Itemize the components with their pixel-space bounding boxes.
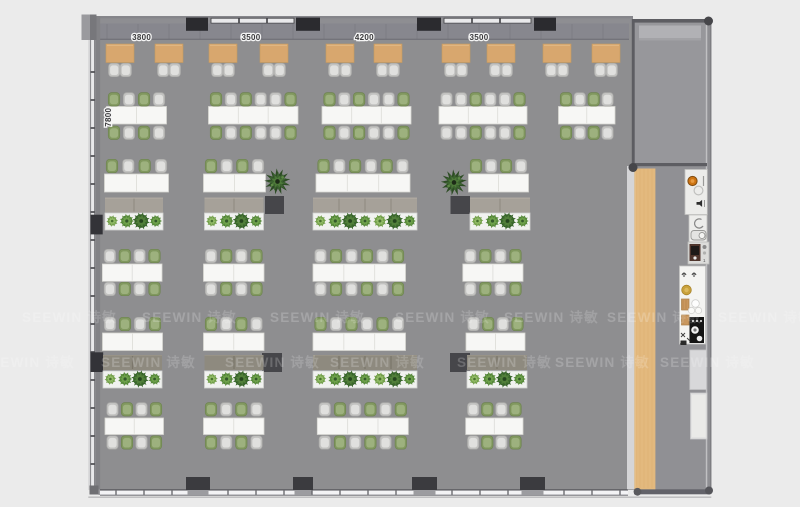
svg-text:4200: 4200 (355, 33, 374, 42)
svg-text:SEEWIN 诗敏: SEEWIN 诗敏 (142, 309, 237, 325)
svg-text:SEEWIN 诗敏: SEEWIN 诗敏 (330, 354, 425, 370)
svg-text:7800: 7800 (104, 108, 113, 127)
svg-text:SEEWIN 诗敏: SEEWIN 诗敏 (555, 354, 650, 370)
svg-text:SEEWIN 诗敏: SEEWIN 诗敏 (395, 309, 490, 325)
svg-text:3800: 3800 (132, 33, 151, 42)
svg-text:SEEWIN 诗敏: SEEWIN 诗敏 (457, 354, 552, 370)
svg-text:3500: 3500 (470, 33, 489, 42)
svg-text:SEEWIN 诗敏: SEEWIN 诗敏 (22, 309, 117, 325)
svg-text:3500: 3500 (242, 33, 261, 42)
svg-text:SEEWIN 诗敏: SEEWIN 诗敏 (101, 354, 196, 370)
svg-text:SEEWIN 诗敏: SEEWIN 诗敏 (225, 354, 320, 370)
svg-text:SEEWIN 诗敏: SEEWIN 诗敏 (718, 309, 800, 325)
svg-text:SEEWIN 诗敏: SEEWIN 诗敏 (660, 354, 755, 370)
svg-text:SEEWIN 诗敏: SEEWIN 诗敏 (504, 309, 599, 325)
svg-text:SEEWIN 诗敏: SEEWIN 诗敏 (607, 309, 702, 325)
svg-text:SEEWIN 诗敏: SEEWIN 诗敏 (270, 309, 365, 325)
svg-text:SEEWIN 诗敏: SEEWIN 诗敏 (0, 354, 75, 370)
